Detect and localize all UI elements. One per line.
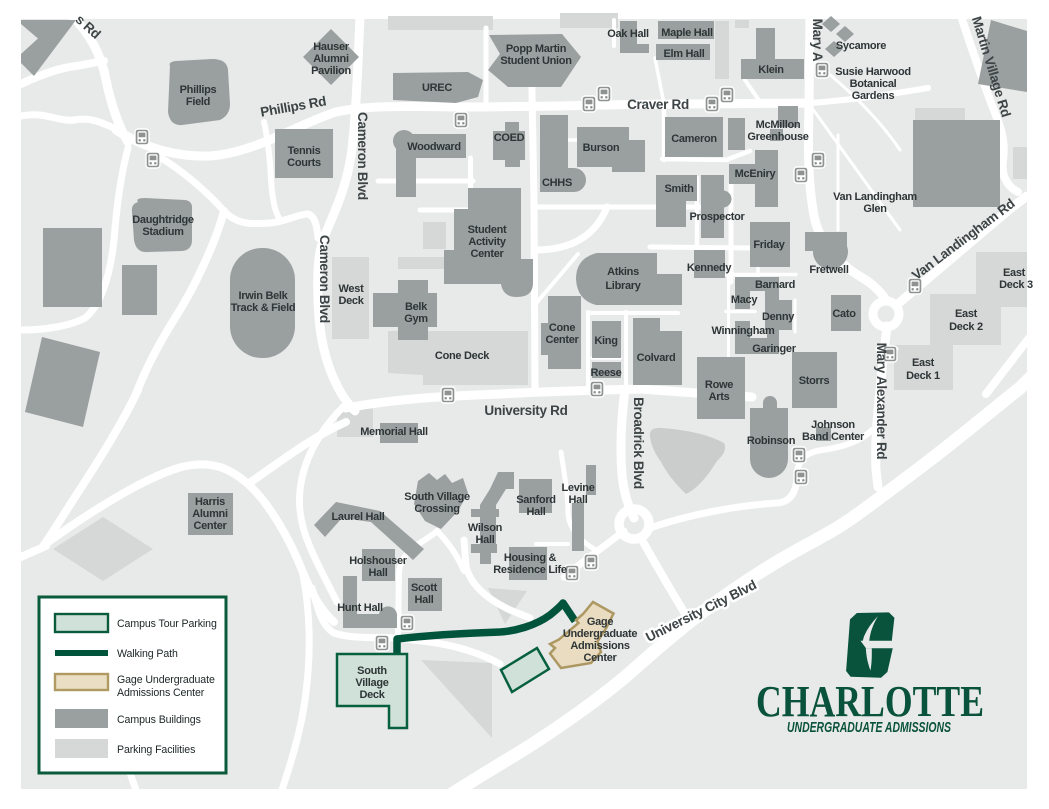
- svg-text:Friday: Friday: [753, 239, 785, 251]
- svg-text:Parking Facilities: Parking Facilities: [117, 744, 195, 756]
- svg-text:Elm Hall: Elm Hall: [663, 48, 704, 60]
- svg-text:Broadrick Blvd: Broadrick Blvd: [631, 397, 646, 489]
- svg-text:Campus Buildings: Campus Buildings: [117, 714, 201, 726]
- svg-text:Housing &: Housing &: [504, 552, 557, 564]
- svg-text:Smith: Smith: [664, 183, 694, 195]
- svg-text:Admissions Center: Admissions Center: [117, 687, 205, 699]
- svg-text:Deck 1: Deck 1: [906, 370, 940, 382]
- svg-text:McMillon: McMillon: [756, 119, 801, 131]
- svg-text:Cameron Blvd: Cameron Blvd: [355, 112, 370, 200]
- svg-text:Courts: Courts: [287, 157, 321, 169]
- svg-text:Maple Hall: Maple Hall: [661, 27, 713, 39]
- svg-text:Klein: Klein: [758, 64, 784, 76]
- svg-text:Prospector: Prospector: [689, 211, 745, 223]
- svg-text:Center: Center: [545, 334, 579, 346]
- svg-text:Johnson: Johnson: [811, 419, 855, 431]
- svg-text:Activity: Activity: [468, 236, 507, 248]
- svg-text:CHHS: CHHS: [542, 177, 572, 189]
- svg-text:Hunt Hall: Hunt Hall: [337, 602, 383, 614]
- svg-text:Gage: Gage: [587, 616, 613, 628]
- svg-text:South: South: [357, 665, 387, 677]
- svg-text:Deck: Deck: [338, 295, 364, 307]
- svg-text:Cone Deck: Cone Deck: [435, 350, 490, 362]
- svg-text:Oak Hall: Oak Hall: [607, 28, 649, 40]
- svg-text:Botanical: Botanical: [850, 78, 897, 90]
- svg-text:Burson: Burson: [583, 142, 620, 154]
- svg-text:UREC: UREC: [422, 82, 452, 94]
- svg-text:COED: COED: [494, 132, 525, 144]
- svg-text:Holshouser: Holshouser: [349, 555, 408, 567]
- svg-text:Gym: Gym: [404, 313, 428, 325]
- svg-text:West: West: [339, 283, 365, 295]
- svg-text:Campus Tour Parking: Campus Tour Parking: [117, 618, 217, 630]
- svg-text:Susie Harwood: Susie Harwood: [835, 66, 911, 78]
- svg-text:Cameron: Cameron: [671, 133, 717, 145]
- svg-text:Kennedy: Kennedy: [687, 262, 733, 274]
- svg-text:Belk: Belk: [405, 301, 428, 313]
- svg-text:Field: Field: [186, 96, 210, 108]
- svg-text:Hall: Hall: [569, 494, 588, 506]
- svg-text:Memorial Hall: Memorial Hall: [360, 426, 428, 438]
- svg-text:Popp Martin: Popp Martin: [506, 43, 567, 55]
- svg-text:Mary A: Mary A: [810, 19, 825, 62]
- svg-text:Garinger: Garinger: [752, 343, 796, 355]
- svg-text:Sanford: Sanford: [516, 494, 555, 506]
- svg-text:Gage Undergraduate: Gage Undergraduate: [117, 674, 215, 686]
- svg-text:Band Center: Band Center: [802, 431, 865, 443]
- svg-text:Reese: Reese: [591, 367, 622, 379]
- svg-text:Fretwell: Fretwell: [809, 264, 848, 276]
- svg-text:Center: Center: [583, 652, 617, 664]
- svg-text:Van Landingham: Van Landingham: [833, 191, 917, 203]
- svg-text:Village: Village: [355, 677, 388, 689]
- svg-text:Scott: Scott: [411, 582, 438, 594]
- svg-text:Alumni: Alumni: [313, 53, 349, 65]
- svg-text:Alumni: Alumni: [192, 508, 228, 520]
- svg-text:Mary Alexander Rd: Mary Alexander Rd: [874, 343, 889, 460]
- svg-text:Hall: Hall: [415, 594, 434, 606]
- svg-text:Cone: Cone: [549, 322, 575, 334]
- svg-text:Hall: Hall: [527, 506, 546, 518]
- svg-text:Stadium: Stadium: [142, 226, 184, 238]
- svg-text:Hall: Hall: [369, 567, 388, 579]
- svg-text:Center: Center: [470, 248, 504, 260]
- svg-text:Atkins: Atkins: [607, 266, 639, 278]
- svg-text:Cato: Cato: [832, 308, 856, 320]
- svg-text:Denny: Denny: [762, 311, 795, 323]
- svg-text:South Village: South Village: [404, 491, 470, 503]
- svg-text:Student: Student: [468, 224, 507, 236]
- svg-text:Walking Path: Walking Path: [117, 648, 178, 660]
- svg-text:Macy: Macy: [731, 294, 758, 306]
- svg-text:Daughtridge: Daughtridge: [132, 214, 194, 226]
- svg-text:Woodward: Woodward: [407, 141, 461, 153]
- svg-text:Glen: Glen: [863, 203, 887, 215]
- svg-text:Robinson: Robinson: [747, 435, 796, 447]
- svg-text:Wilson: Wilson: [468, 522, 503, 534]
- svg-text:Storrs: Storrs: [799, 375, 830, 387]
- svg-text:Crossing: Crossing: [414, 503, 459, 515]
- svg-text:Laurel Hall: Laurel Hall: [332, 511, 385, 523]
- svg-text:Arts: Arts: [709, 391, 730, 403]
- svg-text:Cameron Blvd: Cameron Blvd: [317, 235, 332, 323]
- svg-text:East: East: [912, 357, 935, 369]
- svg-text:Deck 3: Deck 3: [999, 279, 1033, 291]
- svg-text:UNDERGRADUATE ADMISSIONS: UNDERGRADUATE ADMISSIONS: [787, 719, 951, 736]
- svg-text:Winningham: Winningham: [712, 325, 775, 337]
- svg-text:University Rd: University Rd: [484, 403, 567, 418]
- svg-text:Gardens: Gardens: [852, 90, 895, 102]
- svg-text:Greenhouse: Greenhouse: [747, 131, 808, 143]
- svg-text:Craver Rd: Craver Rd: [627, 97, 689, 112]
- svg-text:East: East: [955, 308, 978, 320]
- svg-text:East: East: [1003, 267, 1026, 279]
- svg-text:McEniry: McEniry: [735, 168, 777, 180]
- svg-text:Deck: Deck: [359, 689, 385, 701]
- svg-text:Pavilion: Pavilion: [311, 65, 351, 77]
- svg-text:Hauser: Hauser: [313, 41, 350, 53]
- svg-text:Track & Field: Track & Field: [231, 302, 296, 314]
- svg-text:Phillips: Phillips: [180, 84, 217, 96]
- svg-text:Rowe: Rowe: [705, 379, 733, 391]
- svg-text:Deck 2: Deck 2: [949, 321, 983, 333]
- svg-text:Irwin Belk: Irwin Belk: [239, 290, 289, 302]
- svg-text:Tennis: Tennis: [288, 145, 321, 157]
- svg-text:Sycamore: Sycamore: [836, 40, 886, 52]
- svg-text:Levine: Levine: [561, 482, 594, 494]
- svg-text:Residence Life: Residence Life: [493, 564, 567, 576]
- svg-text:Library: Library: [605, 280, 641, 292]
- svg-text:Center: Center: [193, 520, 227, 532]
- svg-text:Student Union: Student Union: [500, 55, 572, 67]
- svg-text:King: King: [594, 335, 617, 347]
- svg-text:Hall: Hall: [476, 534, 495, 546]
- svg-text:Harris: Harris: [195, 496, 225, 508]
- svg-text:Colvard: Colvard: [637, 352, 676, 364]
- svg-text:Admissions: Admissions: [570, 640, 630, 652]
- svg-text:Undergraduate: Undergraduate: [563, 628, 638, 640]
- svg-text:Barnard: Barnard: [755, 279, 795, 291]
